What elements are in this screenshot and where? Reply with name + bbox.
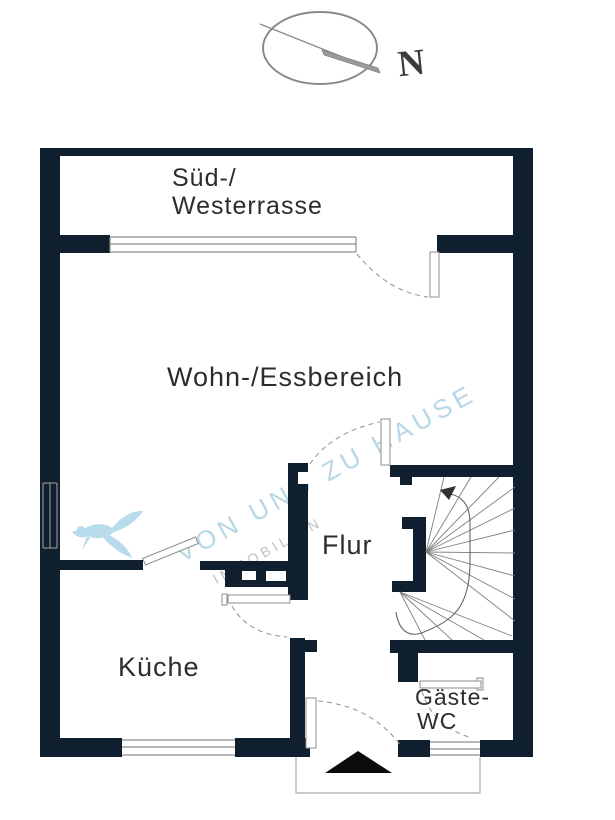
hall-label: Flur <box>322 530 373 561</box>
terrace-label-line1: Süd-/ <box>172 164 237 193</box>
wall-segment <box>400 477 412 485</box>
exterior-walls <box>40 148 533 757</box>
terrace-label-line2: Westerrasse <box>172 192 323 221</box>
wall-segment <box>40 148 533 156</box>
terrace-door <box>357 252 439 297</box>
wall-segment <box>398 653 418 682</box>
kitchen-hall-door <box>222 594 290 637</box>
entrance-arrow-icon <box>325 751 392 773</box>
entrance <box>296 751 480 793</box>
north-label: N <box>396 41 427 87</box>
floorplan-page: VON UND ZU HAUSE IMMOBILIEN N <box>0 0 615 820</box>
entrance-porch <box>296 757 480 793</box>
wc-label-line1: Gäste- <box>415 684 490 711</box>
stair-newel-wall <box>392 581 426 592</box>
wall-segment <box>235 738 310 757</box>
stair-walk-line <box>396 494 470 634</box>
wall-segment <box>390 465 515 477</box>
stair-newel-wall <box>402 517 426 529</box>
stair-direction-arrow <box>440 486 456 500</box>
wc-label-line2: WC <box>417 708 457 735</box>
wall-segment <box>40 738 122 757</box>
wall-segment <box>390 640 515 653</box>
wall-segment <box>305 640 317 652</box>
wall-segment <box>58 235 110 253</box>
wall-segment <box>58 560 143 570</box>
wall-segment <box>480 740 533 757</box>
wall-segment <box>513 156 533 757</box>
wc-window <box>430 742 480 755</box>
floorplan-drawing <box>0 0 615 820</box>
living-room-label: Wohn-/Essbereich <box>167 362 403 393</box>
wall-segment <box>290 638 305 740</box>
wall-segment <box>40 156 60 757</box>
kitchen-label: Küche <box>118 652 200 683</box>
wall-segment <box>437 235 515 253</box>
kitchen-window <box>122 740 235 755</box>
living-hall-door <box>310 419 390 465</box>
terrace-window <box>110 237 356 252</box>
wall-segment <box>398 740 430 757</box>
entrance-door <box>306 698 401 748</box>
wall-segment <box>200 561 288 570</box>
kitchen-living-door <box>143 537 198 565</box>
